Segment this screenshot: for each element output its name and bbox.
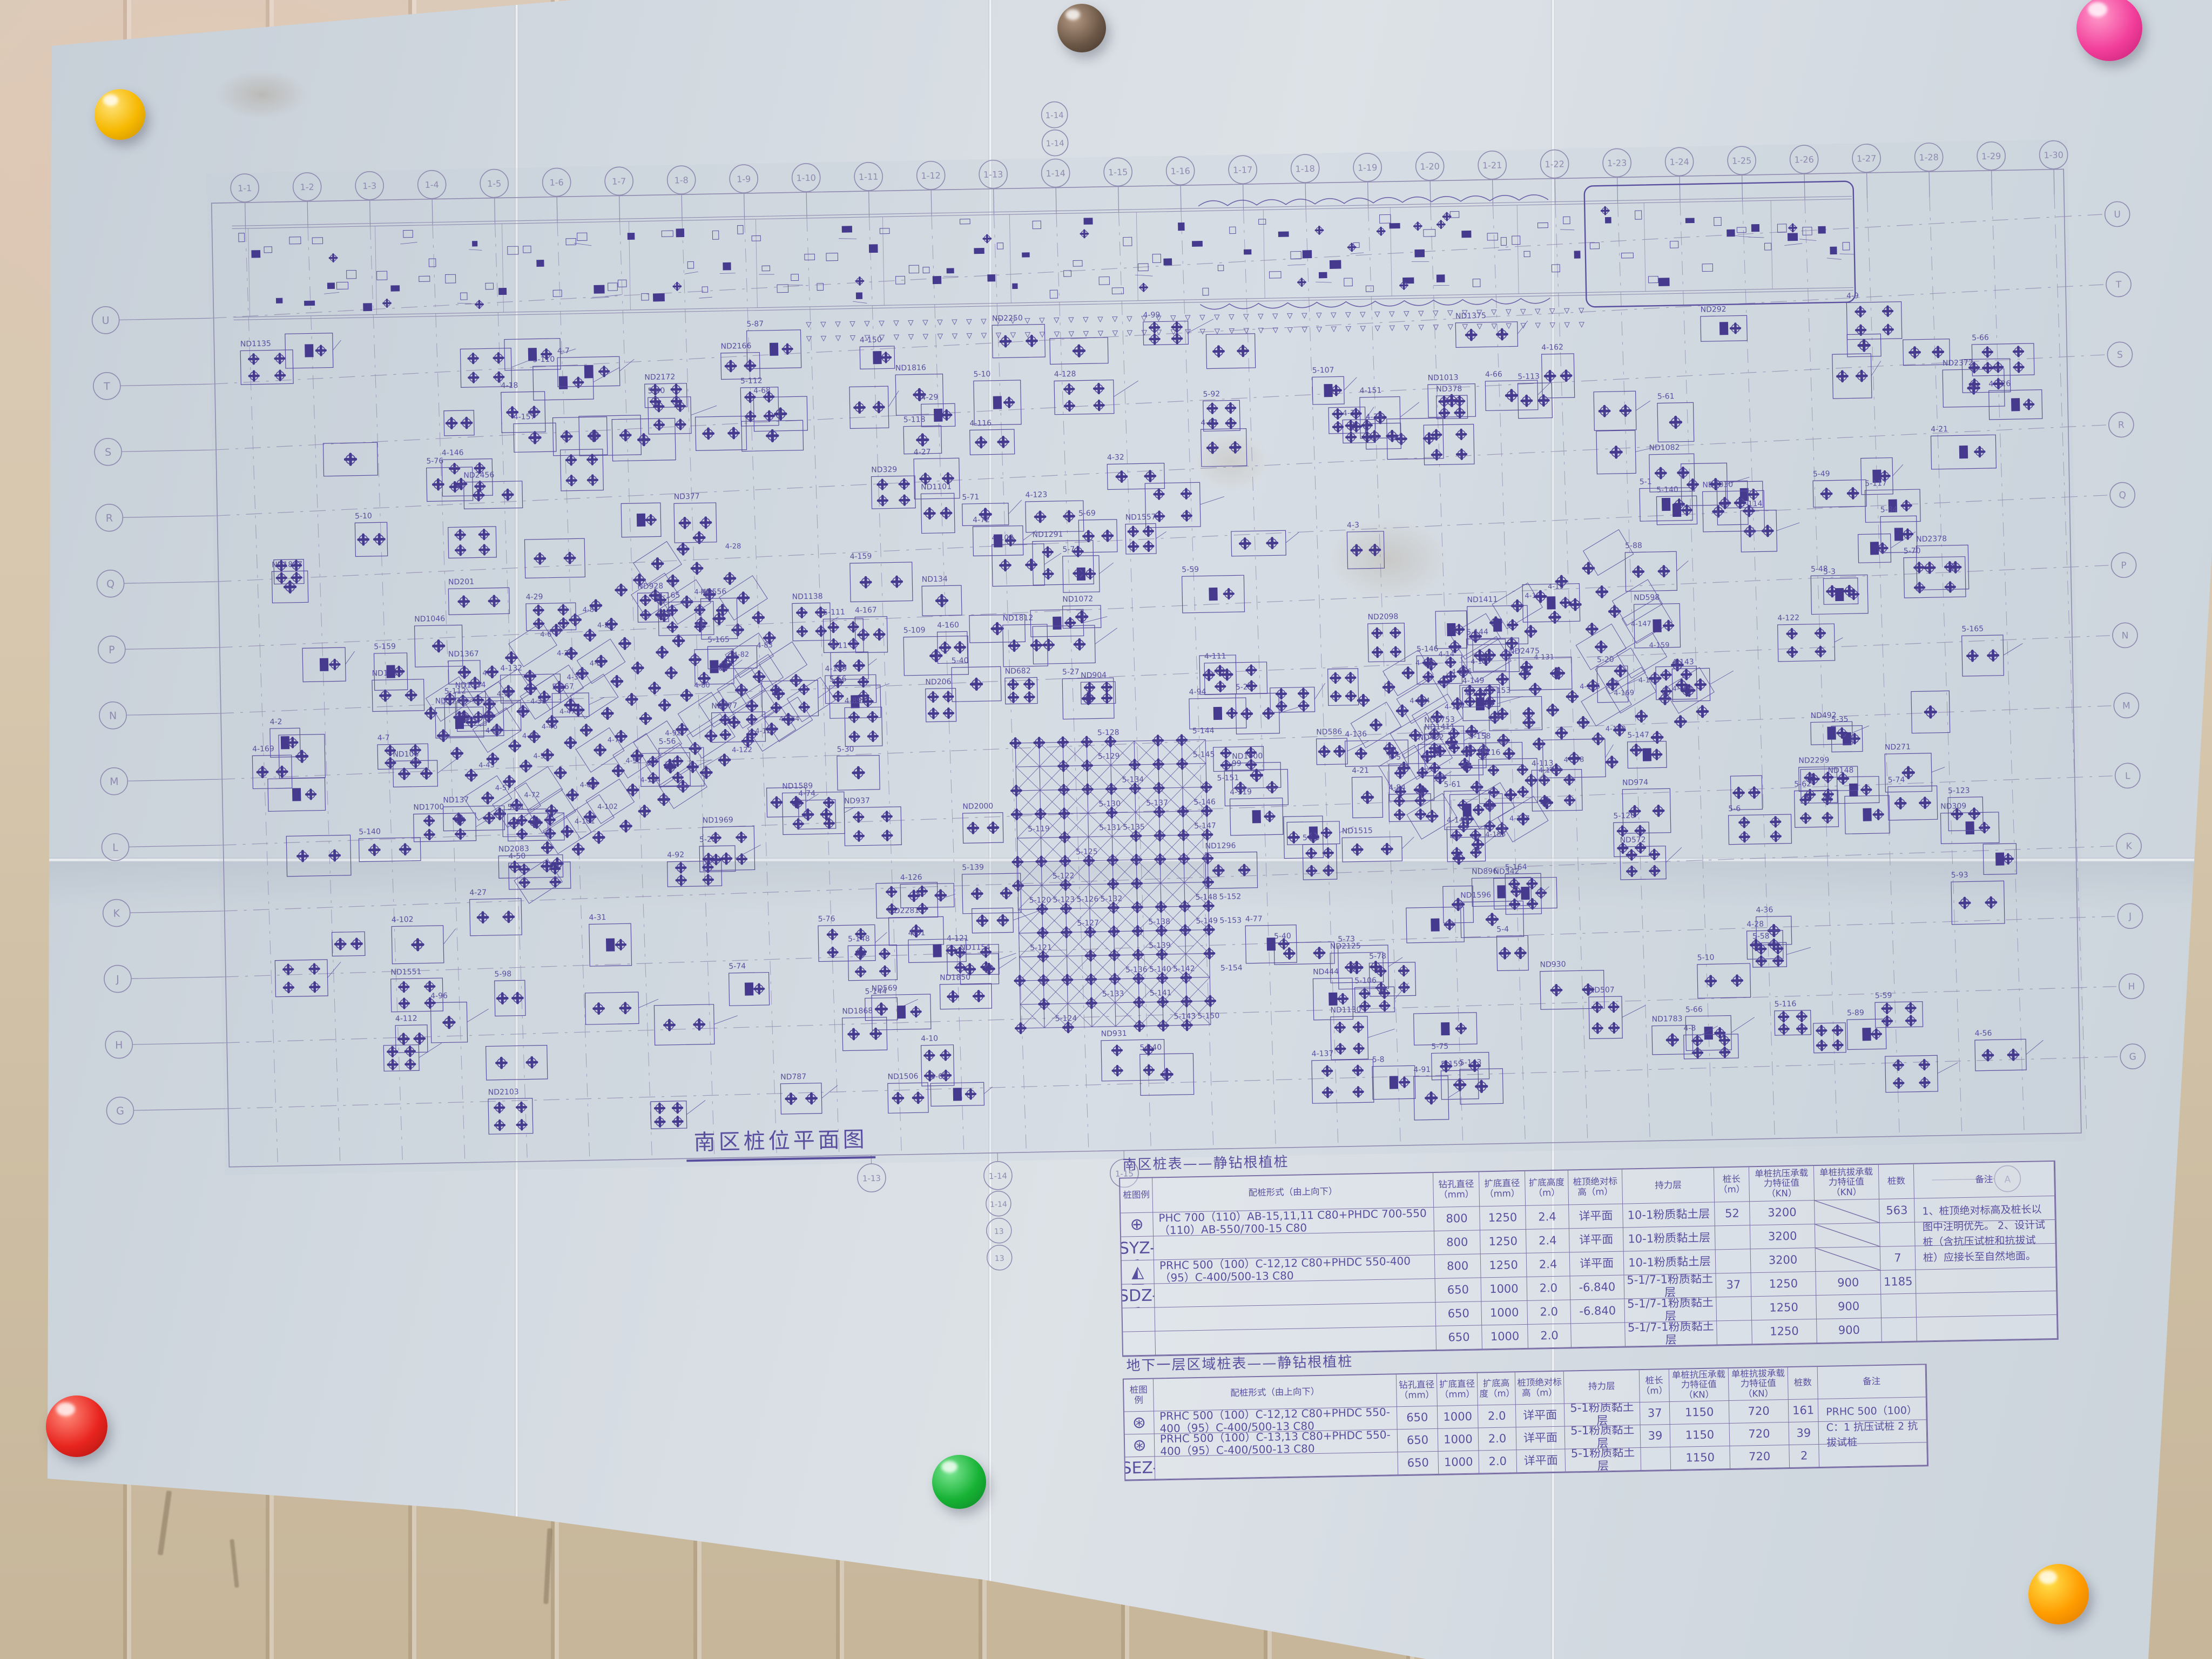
svg-text:5-87: 5-87 [746, 320, 764, 329]
table-cell: 2.0 [1528, 1324, 1572, 1348]
svg-text:5-148: 5-148 [1195, 893, 1217, 902]
svg-text:5-59: 5-59 [1182, 565, 1199, 575]
svg-text:4-3: 4-3 [1347, 521, 1359, 530]
svg-text:1-14: 1-14 [1046, 168, 1065, 179]
svg-text:5-139: 5-139 [1149, 941, 1171, 950]
svg-text:5-70: 5-70 [1904, 547, 1921, 556]
svg-text:4-92: 4-92 [667, 851, 684, 860]
table-cell: ⊛ [1124, 1412, 1155, 1435]
wall-smudge [543, 1528, 552, 1604]
svg-text:M: M [2122, 700, 2130, 711]
svg-text:5-106: 5-106 [1354, 976, 1377, 986]
table-cell [1881, 1318, 1917, 1342]
table-cell: 详平面 [1516, 1404, 1565, 1428]
svg-text:5-66: 5-66 [1685, 1005, 1703, 1014]
svg-text:5-149: 5-149 [1196, 916, 1218, 926]
table-header-cell: 扩底直径（mm） [1479, 1171, 1526, 1207]
table-cell: -6.840 [1570, 1276, 1625, 1300]
svg-text:4-27: 4-27 [469, 888, 487, 898]
svg-text:5-148: 5-148 [848, 935, 870, 944]
svg-text:5-48: 5-48 [1811, 565, 1828, 574]
svg-text:S: S [2117, 349, 2123, 360]
table-cell: 2 [1789, 1445, 1819, 1468]
svg-text:5-74: 5-74 [1887, 775, 1905, 785]
svg-text:J: J [116, 974, 119, 986]
svg-text:4-116: 4-116 [969, 419, 992, 428]
table-header-cell: 持力层 [1622, 1168, 1715, 1204]
svg-text:5-10: 5-10 [1697, 953, 1714, 962]
svg-text:4-169: 4-169 [1614, 689, 1634, 698]
svg-text:1-23: 1-23 [1607, 158, 1627, 168]
svg-text:5-76: 5-76 [818, 915, 835, 924]
svg-text:ND1046: ND1046 [414, 615, 445, 624]
table-cell: 1000 [1438, 1451, 1479, 1474]
svg-text:4-102: 4-102 [392, 915, 414, 925]
table-cell: -6.840 [1570, 1299, 1625, 1324]
svg-text:4-32: 4-32 [1107, 453, 1124, 462]
table-cell: 详平面 [1516, 1449, 1566, 1473]
svg-text:1-25: 1-25 [1732, 156, 1752, 166]
svg-text:ND586: ND586 [1316, 727, 1342, 737]
svg-text:5-147: 5-147 [1194, 821, 1216, 831]
svg-text:5-61: 5-61 [1444, 780, 1461, 790]
svg-text:ND2166: ND2166 [720, 342, 751, 351]
svg-text:5-109: 5-109 [903, 626, 926, 635]
svg-text:U: U [102, 315, 109, 327]
svg-text:5-146: 5-146 [1417, 645, 1439, 654]
svg-text:ND556: ND556 [700, 588, 726, 597]
table-cell: 1185 [1880, 1270, 1916, 1294]
table-cell: 1250 [1751, 1296, 1817, 1320]
plan-title: 南区桩位平面图 [686, 1122, 875, 1162]
table-cell [1716, 1297, 1752, 1321]
svg-text:ND292: ND292 [1701, 305, 1727, 314]
svg-text:ND1753: ND1753 [1424, 716, 1455, 725]
table-cell: 720 [1730, 1445, 1790, 1469]
svg-text:5-129: 5-129 [1098, 752, 1120, 761]
table-cell: 720 [1729, 1400, 1789, 1424]
table-cell: 1250 [1480, 1230, 1527, 1255]
svg-text:4-146: 4-146 [442, 448, 464, 457]
svg-text:Q: Q [2119, 490, 2126, 501]
svg-text:5-84: 5-84 [1880, 505, 1898, 515]
svg-text:5-6: 5-6 [1728, 805, 1741, 813]
svg-text:ND137: ND137 [443, 795, 469, 805]
svg-text:4-162: 4-162 [1541, 343, 1563, 352]
svg-text:1-14: 1-14 [1046, 138, 1064, 149]
svg-text:ND1783: ND1783 [1652, 1015, 1683, 1024]
table1-caption: 南区桩表——静钻根植桩 [1122, 1151, 1289, 1174]
svg-text:ND1291: ND1291 [1032, 530, 1063, 539]
svg-text:4-7: 4-7 [557, 347, 570, 355]
svg-text:5-133: 5-133 [1102, 989, 1124, 999]
svg-text:4-89: 4-89 [845, 697, 862, 706]
photo-scene: 1-11-21-31-41-51-61-71-81-91-101-111-121… [0, 0, 2212, 1659]
svg-text:L: L [2125, 771, 2130, 781]
svg-text:4-31: 4-31 [589, 913, 606, 922]
svg-text:4-102: 4-102 [597, 803, 618, 812]
svg-text:13: 13 [995, 1255, 1004, 1263]
svg-text:5-124: 5-124 [1055, 1014, 1077, 1023]
svg-text:1-19: 1-19 [1358, 163, 1378, 173]
table-cell: 2.0 [1527, 1300, 1571, 1324]
table-cell: ◭ [1122, 1260, 1155, 1285]
table-header-cell: 配桩形式（由上向下） [1154, 1374, 1397, 1411]
svg-text:13: 13 [994, 1228, 1004, 1236]
svg-text:1-4: 1-4 [424, 179, 439, 190]
svg-text:ND2083: ND2083 [498, 845, 529, 854]
svg-text:5-132: 5-132 [1100, 894, 1122, 903]
svg-text:ND1969: ND1969 [703, 816, 733, 825]
svg-text:5-74: 5-74 [729, 962, 746, 971]
svg-text:ND134: ND134 [922, 575, 948, 584]
svg-text:1-18: 1-18 [1295, 164, 1315, 174]
svg-text:ND2378: ND2378 [1916, 535, 1947, 544]
table-cell [1717, 1320, 1752, 1345]
table-cell: 1000 [1481, 1301, 1528, 1326]
svg-text:5-116: 5-116 [1774, 1000, 1796, 1009]
table-cell: 详平面 [1569, 1228, 1624, 1253]
svg-text:5-71: 5-71 [962, 493, 979, 502]
table-cell [1122, 1307, 1155, 1332]
svg-text:1-1: 1-1 [238, 183, 252, 193]
magnet-green [932, 1455, 986, 1509]
svg-text:5-73: 5-73 [1338, 935, 1355, 944]
svg-text:5-158: 5-158 [1469, 732, 1491, 741]
table-header-cell: 扩底直径（mm） [1437, 1373, 1478, 1406]
svg-text:L: L [112, 842, 118, 854]
svg-text:5-121: 5-121 [1030, 943, 1052, 953]
svg-text:5-112: 5-112 [740, 376, 763, 386]
table-cell: 2.0 [1527, 1276, 1571, 1300]
svg-text:ND1411: ND1411 [1467, 595, 1498, 604]
svg-text:S: S [105, 447, 111, 458]
table-cell: 7 [1880, 1246, 1916, 1271]
table-cell: 1250 [1752, 1319, 1817, 1344]
svg-text:H: H [115, 1039, 123, 1051]
svg-text:4-137: 4-137 [1312, 1049, 1334, 1058]
svg-text:ND106: ND106 [393, 750, 419, 759]
svg-text:ND1816: ND1816 [895, 363, 926, 373]
svg-text:5-165: 5-165 [707, 636, 730, 645]
svg-text:5-138: 5-138 [1148, 918, 1170, 927]
svg-text:5-40: 5-40 [648, 387, 665, 396]
table-cell [1155, 1452, 1399, 1479]
svg-text:ND1082: ND1082 [1649, 443, 1680, 453]
svg-text:1-15: 1-15 [1108, 167, 1128, 178]
svg-text:5-140: 5-140 [1656, 485, 1678, 495]
table-cell [1816, 1247, 1881, 1272]
table-header-cell: 扩底高度（m） [1525, 1170, 1569, 1205]
table-cell [1123, 1331, 1156, 1355]
svg-text:5-144: 5-144 [1192, 726, 1215, 736]
svg-text:P: P [2121, 560, 2127, 571]
svg-text:ND206: ND206 [925, 678, 951, 687]
svg-text:5-123: 5-123 [1948, 786, 1970, 795]
table-cell: 1250 [1481, 1253, 1527, 1278]
svg-text:ND148: ND148 [1827, 766, 1853, 775]
svg-text:G: G [116, 1105, 124, 1117]
table-cell: 900 [1817, 1318, 1882, 1343]
svg-text:4-21: 4-21 [1931, 425, 1948, 434]
svg-text:4-29: 4-29 [526, 592, 543, 602]
table-header-cell: 单桩抗拔承载力特征值（KN） [1729, 1367, 1789, 1401]
svg-text:5-135: 5-135 [1123, 823, 1145, 832]
svg-text:ND569: ND569 [872, 984, 898, 993]
svg-text:1-13: 1-13 [862, 1174, 881, 1184]
table-cell: 900 [1816, 1294, 1881, 1319]
svg-text:5-112: 5-112 [444, 687, 467, 696]
svg-text:4-5: 4-5 [1388, 753, 1401, 761]
table-header-cell: 桩长（m） [1714, 1167, 1750, 1202]
table-cell: 650 [1435, 1301, 1482, 1326]
table-header-cell: 扩底高度（m） [1478, 1372, 1516, 1405]
svg-text:1-16: 1-16 [1170, 166, 1190, 177]
svg-text:5-98: 5-98 [494, 970, 511, 979]
table-header-cell: 桩数 [1879, 1164, 1914, 1199]
table-cell: ⊛ [1125, 1434, 1155, 1458]
svg-text:4-84: 4-84 [1388, 783, 1406, 792]
svg-text:4-136: 4-136 [1345, 730, 1367, 739]
svg-text:5-122: 5-122 [1053, 872, 1075, 881]
table-cell: 10-1粉质黏土层 [1623, 1226, 1716, 1251]
svg-text:1-26: 1-26 [1794, 154, 1814, 165]
table-header-cell: 单桩抗压承载力特征值（KN） [1669, 1368, 1729, 1402]
svg-text:4-56: 4-56 [1975, 1029, 1992, 1038]
svg-text:ND378: ND378 [1436, 385, 1462, 394]
table-cell: 2.4 [1527, 1252, 1570, 1277]
svg-text:4-6: 4-6 [540, 631, 552, 639]
svg-text:5-20: 5-20 [1597, 656, 1614, 665]
paper-sheet: 1-11-21-31-41-51-61-71-81-91-101-111-121… [0, 0, 2212, 1659]
svg-text:P: P [109, 644, 115, 656]
svg-text:1-17: 1-17 [1233, 165, 1253, 176]
svg-text:4-113: 4-113 [1532, 759, 1554, 768]
svg-text:T: T [2115, 279, 2122, 290]
table-cell: 650 [1398, 1429, 1439, 1452]
svg-text:4-123: 4-123 [1025, 490, 1047, 500]
table-header-cell: 备注 [1818, 1365, 1926, 1399]
svg-text:5-75: 5-75 [1431, 1042, 1448, 1051]
table-cell: 1150 [1670, 1446, 1730, 1470]
table-cell: 800 [1434, 1206, 1480, 1231]
svg-text:4-122: 4-122 [1777, 613, 1799, 623]
svg-text:ND928: ND928 [637, 582, 663, 591]
svg-text:5-117: 5-117 [1865, 479, 1887, 488]
svg-text:1-12: 1-12 [921, 170, 941, 181]
svg-text:4-150: 4-150 [860, 335, 882, 345]
svg-text:ND1072: ND1072 [1062, 595, 1093, 604]
svg-text:5-118: 5-118 [903, 415, 926, 424]
svg-text:5-25: 5-25 [1236, 683, 1253, 692]
svg-text:5-140: 5-140 [1149, 965, 1171, 974]
svg-text:5-120: 5-120 [1029, 896, 1051, 905]
svg-text:5-167: 5-167 [552, 683, 574, 692]
svg-text:N: N [2121, 630, 2128, 641]
svg-text:1-3: 1-3 [362, 181, 376, 191]
table-header-cell: 桩图例 [1120, 1178, 1153, 1213]
svg-text:ND1551: ND1551 [390, 968, 421, 977]
svg-text:1-7: 1-7 [612, 176, 626, 186]
svg-text:1-9: 1-9 [737, 174, 751, 184]
svg-text:ND377: ND377 [674, 492, 700, 501]
svg-text:ND1375: ND1375 [1455, 312, 1486, 321]
svg-text:1-13: 1-13 [983, 169, 1003, 180]
table-cell: 2.4 [1526, 1205, 1569, 1229]
table-cell: 5-1粉质黏土层 [1565, 1448, 1641, 1472]
svg-text:ND1135: ND1135 [240, 340, 271, 349]
svg-text:5-56: 5-56 [659, 737, 676, 746]
svg-text:ND598: ND598 [1634, 593, 1660, 602]
svg-text:1-10: 1-10 [796, 173, 816, 184]
svg-text:5-127: 5-127 [1077, 919, 1099, 928]
svg-text:4-91: 4-91 [1413, 1065, 1431, 1075]
svg-text:1-21: 1-21 [1482, 160, 1502, 171]
svg-text:4-21: 4-21 [1352, 766, 1369, 775]
table-cell: 5-1/7-1粉质黏土层 [1625, 1321, 1717, 1346]
svg-text:5-165: 5-165 [1961, 625, 1984, 634]
svg-text:5-21: 5-21 [699, 835, 717, 845]
svg-text:ND1715: ND1715 [435, 697, 466, 706]
svg-text:1-14: 1-14 [990, 1200, 1007, 1209]
svg-text:4-29: 4-29 [921, 393, 938, 402]
svg-text:4-72: 4-72 [524, 791, 540, 800]
svg-text:5-4: 5-4 [1496, 925, 1509, 934]
table-cell: 720 [1730, 1422, 1790, 1446]
svg-text:5-40: 5-40 [952, 656, 969, 665]
table-header-cell: 桩顶绝对标高（m） [1515, 1372, 1564, 1405]
svg-text:ND682: ND682 [1005, 667, 1031, 676]
svg-text:K: K [113, 907, 120, 919]
svg-text:5-153: 5-153 [1219, 916, 1242, 925]
svg-text:1-2: 1-2 [300, 182, 314, 192]
svg-text:5-89: 5-89 [1847, 1009, 1864, 1018]
table-header-cell: 钻孔直径（mm） [1433, 1172, 1480, 1208]
table-cell: 1000 [1438, 1428, 1479, 1452]
svg-text:1-28: 1-28 [1919, 152, 1939, 163]
plan-drawing-layer: 1-11-21-31-41-51-61-71-81-91-101-111-121… [0, 0, 2212, 1659]
table-cell: 2.0 [1479, 1450, 1517, 1473]
table-cell: 161 [1789, 1399, 1819, 1422]
table-cell: 37 [1640, 1402, 1670, 1425]
svg-text:ND937: ND937 [844, 797, 870, 806]
svg-text:ND1557: ND1557 [1125, 513, 1156, 522]
svg-text:4-167: 4-167 [855, 606, 877, 615]
svg-text:R: R [2118, 420, 2125, 430]
svg-text:ND1700: ND1700 [413, 802, 444, 812]
svg-text:ND1812: ND1812 [1002, 613, 1033, 623]
svg-text:5-119: 5-119 [1028, 825, 1050, 834]
svg-text:5-61: 5-61 [1657, 392, 1675, 401]
magnet-red [46, 1395, 107, 1457]
svg-text:5-49: 5-49 [1813, 470, 1830, 479]
svg-text:5-146: 5-146 [1193, 798, 1216, 807]
svg-text:ND1013: ND1013 [1428, 373, 1459, 382]
table-cell: 650 [1398, 1452, 1439, 1475]
svg-text:1-27: 1-27 [1857, 153, 1877, 164]
svg-text:5-154: 5-154 [1220, 963, 1243, 973]
svg-text:4-99: 4-99 [1143, 311, 1160, 320]
svg-text:4-112: 4-112 [395, 1014, 417, 1023]
table-cell [1641, 1447, 1671, 1471]
svg-text:4-159: 4-159 [1649, 641, 1670, 650]
svg-text:ND1850: ND1850 [940, 973, 970, 982]
table-cell: ⊕ SYZ-1 [1121, 1237, 1154, 1261]
svg-text:4-160: 4-160 [937, 621, 959, 630]
svg-text:5-134: 5-134 [1122, 775, 1144, 785]
svg-text:4-132: 4-132 [500, 664, 522, 673]
svg-text:5-92: 5-92 [1203, 390, 1220, 399]
svg-text:ND2456: ND2456 [463, 471, 494, 480]
svg-text:4-27: 4-27 [914, 448, 931, 457]
svg-text:5-76: 5-76 [426, 457, 443, 466]
magnet-orange [2028, 1564, 2089, 1624]
svg-text:5-150: 5-150 [1197, 1011, 1219, 1021]
svg-text:M: M [110, 775, 119, 787]
svg-text:ND402: ND402 [1418, 733, 1444, 743]
svg-text:ND2000: ND2000 [962, 802, 993, 811]
svg-text:5-164: 5-164 [1505, 863, 1527, 872]
svg-text:5-113: 5-113 [1518, 372, 1540, 381]
svg-text:1-5: 1-5 [487, 178, 501, 188]
table-cell: 详平面 [1570, 1252, 1624, 1277]
svg-text:5-123: 5-123 [1053, 895, 1075, 905]
table-cell [1715, 1225, 1751, 1250]
svg-text:ND271: ND271 [1885, 743, 1911, 752]
table-cell: 650 [1435, 1278, 1482, 1303]
svg-text:5-69: 5-69 [1078, 509, 1096, 518]
svg-text:4-96: 4-96 [430, 992, 448, 1001]
svg-text:5-137: 5-137 [1146, 799, 1168, 808]
svg-text:5-10: 5-10 [355, 512, 372, 521]
table-cell: 5-1/7-1粉质黏土层 [1624, 1297, 1717, 1323]
svg-text:ND1296: ND1296 [1205, 841, 1236, 851]
table-header-cell: 桩数 [1788, 1367, 1818, 1400]
table-header-cell: 单桩抗拔承载力特征值（KN） [1814, 1165, 1879, 1201]
svg-text:4-126: 4-126 [900, 873, 922, 882]
svg-text:1-29: 1-29 [1981, 151, 2001, 161]
svg-text:5-142: 5-142 [1173, 965, 1195, 974]
table-cell: 563 [1879, 1199, 1915, 1223]
svg-text:J: J [2128, 911, 2132, 922]
svg-text:ND2372: ND2372 [1943, 359, 1973, 368]
svg-text:ND1154: ND1154 [960, 943, 990, 952]
svg-text:Q: Q [106, 578, 114, 590]
table-cell: 1150 [1670, 1424, 1730, 1447]
svg-text:4-169: 4-169 [252, 745, 274, 754]
svg-text:4-74: 4-74 [798, 789, 815, 798]
table-cell: 10-1粉质黏土层 [1623, 1202, 1715, 1228]
svg-text:T: T [103, 381, 110, 393]
table-header-cell: 配桩形式（由上向下） [1152, 1173, 1434, 1213]
svg-text:ND1367: ND1367 [448, 650, 479, 659]
table-cell: 10-1粉质黏土层 [1624, 1250, 1716, 1275]
svg-text:5-120: 5-120 [1613, 812, 1635, 821]
svg-text:5-139: 5-139 [962, 863, 984, 872]
svg-text:ND1515: ND1515 [1342, 826, 1373, 835]
table-cell: 3200 [1750, 1224, 1816, 1249]
svg-text:5-143: 5-143 [1174, 1012, 1196, 1021]
svg-text:5-126: 5-126 [1076, 895, 1098, 904]
svg-text:4-143: 4-143 [1672, 658, 1694, 667]
svg-text:ND492: ND492 [1811, 711, 1837, 720]
svg-text:1-8: 1-8 [674, 175, 688, 185]
table-cell: 39 [1789, 1422, 1819, 1445]
svg-text:4-2: 4-2 [269, 718, 282, 726]
table2-caption: 地下一层区域桩表——静钻根植桩 [1126, 1351, 1353, 1375]
svg-text:1-14: 1-14 [1046, 110, 1064, 120]
svg-text:1-14: 1-14 [989, 1171, 1007, 1181]
